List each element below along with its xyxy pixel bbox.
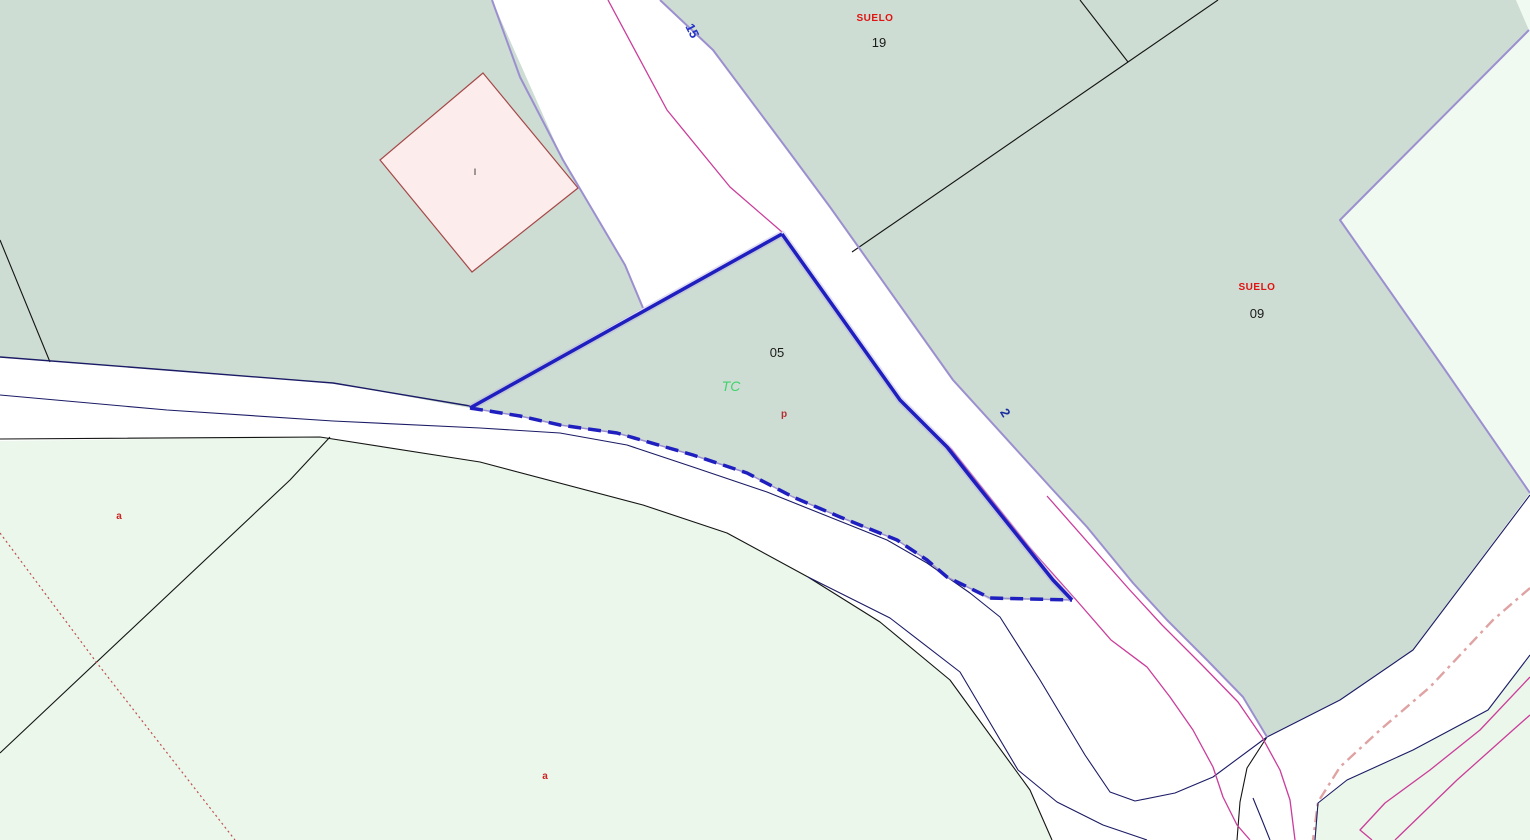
label-parcel-05-number: 05 (770, 345, 784, 360)
label-construction-mark: I (474, 167, 477, 177)
boundary-line-junction (1237, 737, 1267, 840)
label-subparcel-a-bottom: a (542, 771, 548, 782)
label-parcel-19-number: 19 (872, 35, 886, 50)
map-svg: SUELO 19 SUELO 09 05 TC p a a I 15 2 (0, 0, 1530, 840)
label-subparcel-a-left: a (116, 511, 122, 522)
label-suelo-19: SUELO (857, 13, 894, 24)
label-parcel-09-number: 09 (1250, 306, 1264, 321)
cadastral-map-canvas[interactable]: SUELO 19 SUELO 09 05 TC p a a I 15 2 (0, 0, 1530, 840)
label-parcel-05-use-code: TC (722, 378, 742, 394)
label-suelo-09: SUELO (1239, 282, 1276, 293)
junction-navy-stub (1253, 798, 1270, 840)
label-parcel-05-subparcel: p (781, 409, 787, 420)
